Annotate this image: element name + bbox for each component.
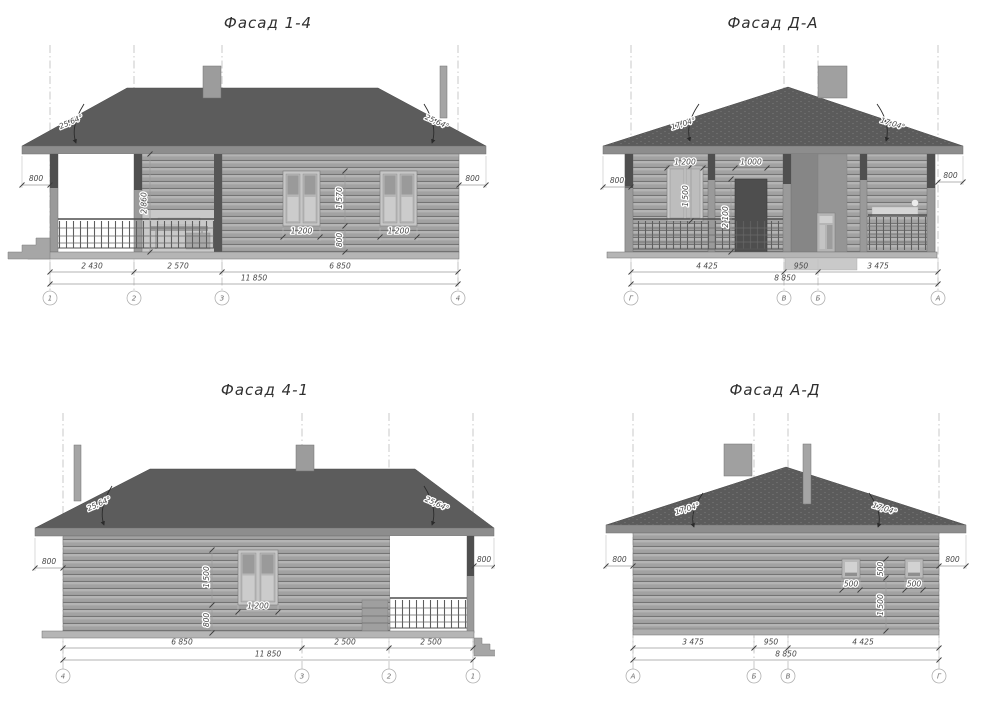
fascia-board: [606, 525, 966, 533]
base-band: [633, 629, 939, 635]
dim-span: 6 850: [171, 638, 193, 647]
dim-overhang-right: 800: [465, 174, 480, 183]
porch-furniture: [362, 600, 388, 631]
axis-markers: А Б В Г: [626, 669, 946, 683]
axis-label: А: [630, 673, 636, 681]
facade-1-4: Фасад 1-4: [0, 0, 495, 351]
dim-span: 3 475: [867, 262, 889, 271]
dim-overhang-left: 800: [610, 176, 625, 185]
chimney: [203, 66, 221, 98]
roof: [606, 444, 966, 533]
small-window: [905, 559, 923, 578]
log-wall: [633, 533, 939, 631]
axis-label: 2: [132, 295, 137, 303]
fascia-board: [35, 528, 494, 536]
facade-title: Фасад 1-4: [224, 14, 312, 32]
axis-label: А: [935, 295, 941, 303]
window: [283, 171, 320, 226]
axis-markers: 1 2 3 4: [43, 291, 465, 305]
axis-label: 1: [471, 673, 475, 681]
small-window: [817, 213, 835, 252]
fascia-board: [22, 146, 486, 154]
dim-span: 950: [764, 638, 779, 647]
axis-label: Б: [816, 295, 821, 303]
dim-window-height: 1 500: [681, 185, 690, 207]
porch-post: [467, 536, 474, 633]
log-wall: [63, 536, 390, 633]
vent-pipe: [440, 66, 447, 118]
dim-overhang-left: 800: [42, 557, 57, 566]
dim-sill-height: 1 500: [876, 594, 885, 616]
dim-overhang-left: 800: [612, 555, 627, 564]
axis-label: 1: [48, 295, 52, 303]
dim-door-height: 2 100: [721, 206, 730, 228]
axis-label: 3: [300, 673, 304, 681]
axis-markers: Г В Б А: [624, 291, 945, 305]
dim-overhang-right: 800: [477, 555, 492, 564]
railing: [58, 219, 214, 248]
porch-post: [860, 154, 867, 252]
dim-span: 2 500: [334, 638, 356, 647]
dim-overhang-right: 800: [945, 555, 960, 564]
roof-slope: [603, 87, 963, 146]
window: [380, 171, 417, 226]
chimney: [724, 444, 752, 476]
dim-total: 11 850: [255, 650, 281, 659]
dim-overhang-left: 800: [29, 174, 44, 183]
dim-window-width: 1 200: [291, 227, 313, 236]
axis-label: 4: [61, 673, 65, 681]
stairs: [8, 238, 50, 259]
dim-window-width: 1 200: [247, 602, 269, 611]
dim-window-width: 1 200: [388, 227, 410, 236]
axis-label: 4: [456, 295, 460, 303]
window: [238, 550, 278, 605]
dim-window-height: 500: [876, 562, 885, 577]
dim-overhang-right: 800: [943, 171, 958, 180]
terrace-floor: [42, 631, 474, 638]
drawing-sheet: Фасад 1-4: [0, 0, 990, 702]
dim-sill-height: 800: [202, 613, 211, 628]
open-bay: [390, 536, 467, 598]
vent-pipe: [803, 444, 811, 504]
dim-window-width: 500: [844, 580, 859, 589]
porch-post: [927, 154, 935, 252]
porch-post: [50, 154, 58, 252]
facade-a-d: Фасад А-Д 800 800 500 500 500 1 500 3 47…: [495, 351, 990, 702]
axis-label: 2: [387, 673, 392, 681]
small-window: [842, 559, 860, 578]
axis-label: Б: [752, 673, 757, 681]
windows: [238, 550, 278, 605]
dim-span: 6 850: [329, 262, 351, 271]
dim-window-height: 1 570: [335, 187, 344, 209]
dim-span: 4 425: [852, 638, 874, 647]
fascia-board: [603, 146, 963, 154]
facade-title: Фасад А-Д: [729, 381, 820, 399]
walls: [633, 533, 939, 635]
chimney: [296, 445, 314, 471]
dim-porch-height: 2 860: [140, 192, 149, 214]
dim-window-height: 1 500: [202, 566, 211, 588]
terrace-floor: [607, 252, 937, 258]
dim-span: 3 475: [682, 638, 704, 647]
dim-span: 950: [794, 262, 809, 271]
facade-4-1: Фасад 4-1: [0, 351, 495, 702]
shaded-wall: [791, 154, 818, 252]
porch-post: [625, 154, 633, 252]
railing: [390, 598, 467, 628]
chimney: [818, 66, 847, 98]
roof-slope: [606, 467, 966, 525]
roof-slope: [22, 88, 486, 146]
dim-window-width: 1 200: [674, 158, 696, 167]
dim-sill-height: 800: [335, 233, 344, 248]
facade-title: Фасад Д-А: [727, 14, 818, 32]
dim-total: 8 850: [775, 650, 797, 659]
dim-span: 2 430: [81, 262, 103, 271]
facade-d-a: Фасад Д-А: [495, 0, 990, 351]
terrace-floor: [28, 252, 459, 259]
roof: [603, 66, 963, 154]
axis-label: В: [782, 295, 787, 303]
axis-label: 3: [220, 295, 224, 303]
dim-total: 11 850: [241, 274, 267, 283]
roof: [35, 445, 494, 536]
porch-post: [783, 154, 791, 252]
dim-window-width: 500: [907, 580, 922, 589]
dim-door-width: 1 000: [740, 158, 762, 167]
dim-span: 2 500: [420, 638, 442, 647]
axis-label: В: [786, 673, 791, 681]
facade-title: Фасад 4-1: [221, 381, 309, 399]
vent-pipe: [74, 445, 81, 501]
porch-post: [214, 154, 222, 252]
porch-wall: [141, 154, 218, 210]
dim-span: 4 425: [696, 262, 718, 271]
roof: [22, 66, 486, 154]
dim-span: 2 570: [167, 262, 189, 271]
stairs: [474, 638, 495, 656]
axis-markers: 4 3 2 1: [56, 669, 480, 683]
dim-total: 8 850: [774, 274, 796, 283]
